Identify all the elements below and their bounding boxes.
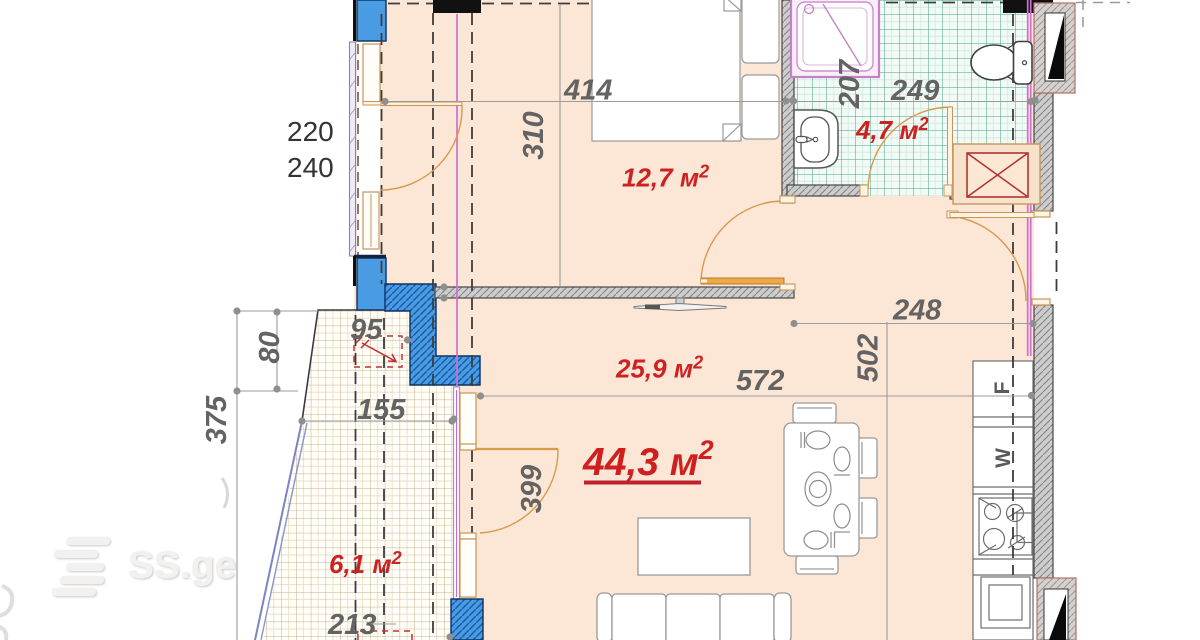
svg-text:SS.ge: SS.ge — [128, 544, 236, 587]
svg-text:249: 249 — [890, 75, 939, 107]
svg-text:4,7 м2: 4,7 м2 — [855, 114, 929, 145]
svg-text:95: 95 — [350, 314, 383, 346]
svg-text:80: 80 — [254, 331, 286, 363]
svg-text:399: 399 — [516, 465, 548, 513]
svg-text:155: 155 — [357, 394, 406, 426]
svg-text:502: 502 — [853, 334, 885, 382]
svg-text:213: 213 — [327, 609, 376, 640]
svg-text:44,3 м2: 44,3 м2 — [582, 435, 714, 484]
svg-text:25,9 м2: 25,9 м2 — [615, 353, 703, 384]
svg-text:248: 248 — [892, 295, 942, 327]
svg-text:310: 310 — [518, 111, 550, 159]
svg-text:240: 240 — [287, 152, 334, 183]
svg-text:W: W — [992, 448, 1015, 468]
svg-text:12,7 м2: 12,7 м2 — [622, 162, 709, 193]
svg-text:207: 207 — [834, 58, 866, 109]
svg-text:220: 220 — [287, 116, 334, 147]
svg-text:F: F — [991, 381, 1014, 394]
svg-text:375: 375 — [201, 395, 233, 444]
svg-text:6,1 м2: 6,1 м2 — [329, 548, 402, 579]
svg-text:572: 572 — [736, 365, 784, 397]
svg-text:414: 414 — [563, 75, 612, 107]
